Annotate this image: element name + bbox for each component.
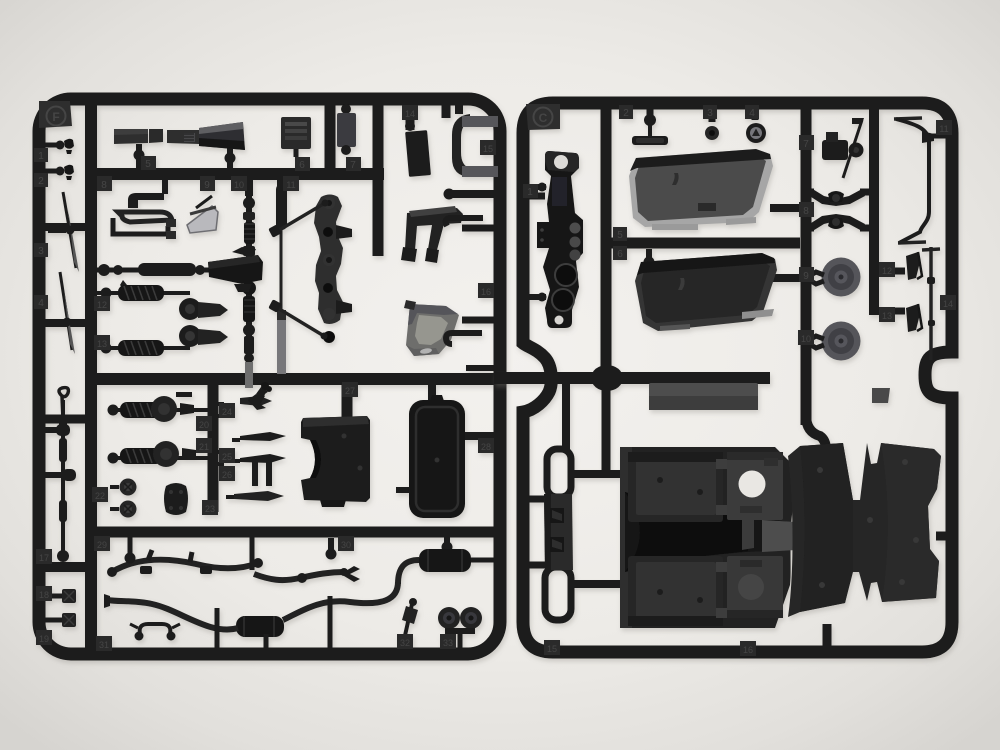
- svg-text:3: 3: [707, 108, 713, 119]
- svg-text:25: 25: [222, 452, 232, 462]
- svg-text:11: 11: [939, 124, 948, 134]
- svg-text:28: 28: [481, 442, 491, 452]
- svg-text:33: 33: [443, 638, 453, 648]
- svg-text:2: 2: [38, 176, 44, 187]
- svg-text:29: 29: [97, 540, 107, 550]
- svg-text:12: 12: [97, 300, 107, 310]
- svg-text:8: 8: [101, 180, 107, 191]
- svg-text:11: 11: [286, 180, 295, 190]
- svg-text:8: 8: [803, 206, 809, 217]
- svg-text:12: 12: [882, 266, 892, 276]
- svg-text:5: 5: [617, 230, 623, 241]
- svg-text:32: 32: [400, 638, 410, 648]
- svg-text:26: 26: [222, 470, 232, 480]
- svg-text:4: 4: [38, 298, 44, 309]
- svg-text:14: 14: [943, 299, 953, 309]
- svg-text:9: 9: [803, 271, 809, 282]
- svg-text:10: 10: [234, 180, 244, 190]
- svg-text:13: 13: [97, 339, 107, 349]
- svg-text:21: 21: [199, 442, 209, 452]
- svg-text:31: 31: [99, 640, 109, 650]
- svg-text:27: 27: [345, 386, 355, 396]
- svg-text:16: 16: [743, 645, 753, 655]
- svg-text:F: F: [52, 110, 59, 124]
- svg-text:24: 24: [222, 407, 232, 417]
- svg-text:6: 6: [299, 160, 305, 171]
- svg-text:6: 6: [617, 249, 623, 260]
- svg-text:5: 5: [145, 159, 151, 170]
- svg-text:22: 22: [95, 491, 105, 501]
- svg-text:17: 17: [39, 553, 49, 563]
- svg-text:20: 20: [199, 420, 209, 430]
- svg-text:23: 23: [205, 504, 215, 514]
- svg-text:14: 14: [405, 109, 415, 119]
- svg-text:30: 30: [341, 540, 351, 550]
- svg-text:4: 4: [749, 108, 755, 119]
- svg-text:19: 19: [39, 634, 49, 644]
- svg-text:C: C: [539, 111, 548, 125]
- svg-text:9: 9: [204, 180, 210, 191]
- svg-text:18: 18: [39, 590, 49, 600]
- svg-text:15: 15: [547, 644, 557, 654]
- svg-text:1: 1: [38, 151, 44, 162]
- svg-text:16: 16: [481, 287, 491, 297]
- svg-text:15: 15: [483, 144, 493, 154]
- svg-text:7: 7: [803, 139, 809, 150]
- svg-text:3: 3: [38, 246, 44, 257]
- svg-text:7: 7: [350, 160, 356, 171]
- svg-text:10: 10: [801, 334, 811, 344]
- svg-text:2: 2: [623, 108, 629, 119]
- svg-text:1: 1: [527, 187, 533, 198]
- svg-text:13: 13: [882, 311, 892, 321]
